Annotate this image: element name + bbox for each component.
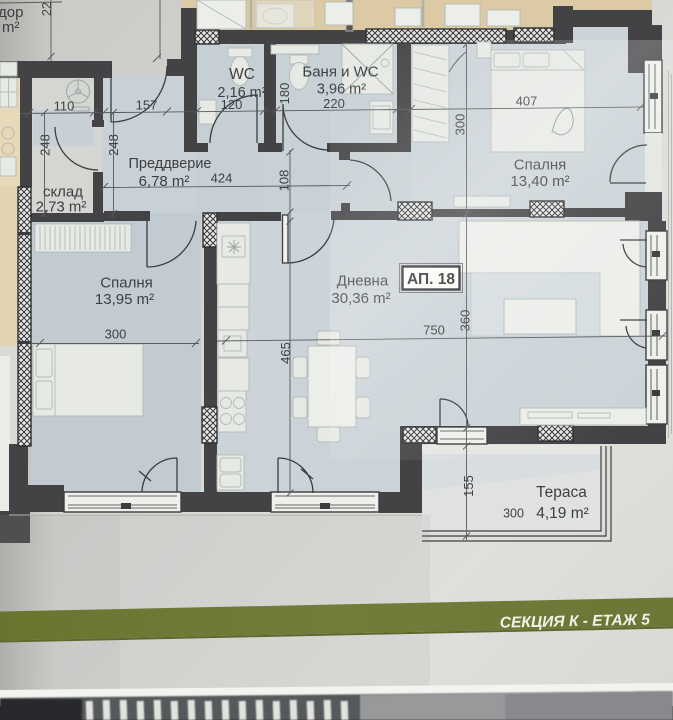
svg-text:300: 300 [105, 327, 127, 342]
svg-text:2,16 m²: 2,16 m² [217, 85, 266, 101]
svg-text:Спалня: Спалня [100, 275, 152, 292]
svg-text:СЕКЦИЯ К - ЕТАЖ 5: СЕКЦИЯ К - ЕТАЖ 5 [500, 611, 651, 631]
svg-text:155: 155 [461, 475, 476, 497]
svg-text:300: 300 [503, 507, 524, 521]
svg-text:465: 465 [278, 342, 293, 364]
svg-text:2,73 m²: 2,73 m² [36, 199, 87, 216]
svg-text:m²: m² [2, 19, 20, 36]
svg-text:6,78 m²: 6,78 m² [139, 173, 190, 190]
svg-text:248: 248 [106, 134, 121, 156]
svg-text:424: 424 [211, 171, 233, 186]
svg-text:110: 110 [54, 99, 75, 114]
svg-text:22: 22 [40, 2, 54, 16]
svg-text:Тераса: Тераса [536, 484, 587, 501]
svg-text:108: 108 [277, 170, 292, 192]
svg-text:180: 180 [277, 83, 292, 105]
svg-text:13,95 m²: 13,95 m² [95, 291, 154, 308]
svg-text:157: 157 [136, 98, 158, 113]
svg-text:4,19 m²: 4,19 m² [536, 505, 589, 522]
svg-text:248: 248 [38, 134, 53, 156]
svg-text:Преддверие: Преддверие [129, 156, 212, 172]
svg-text:WC: WC [229, 66, 255, 83]
